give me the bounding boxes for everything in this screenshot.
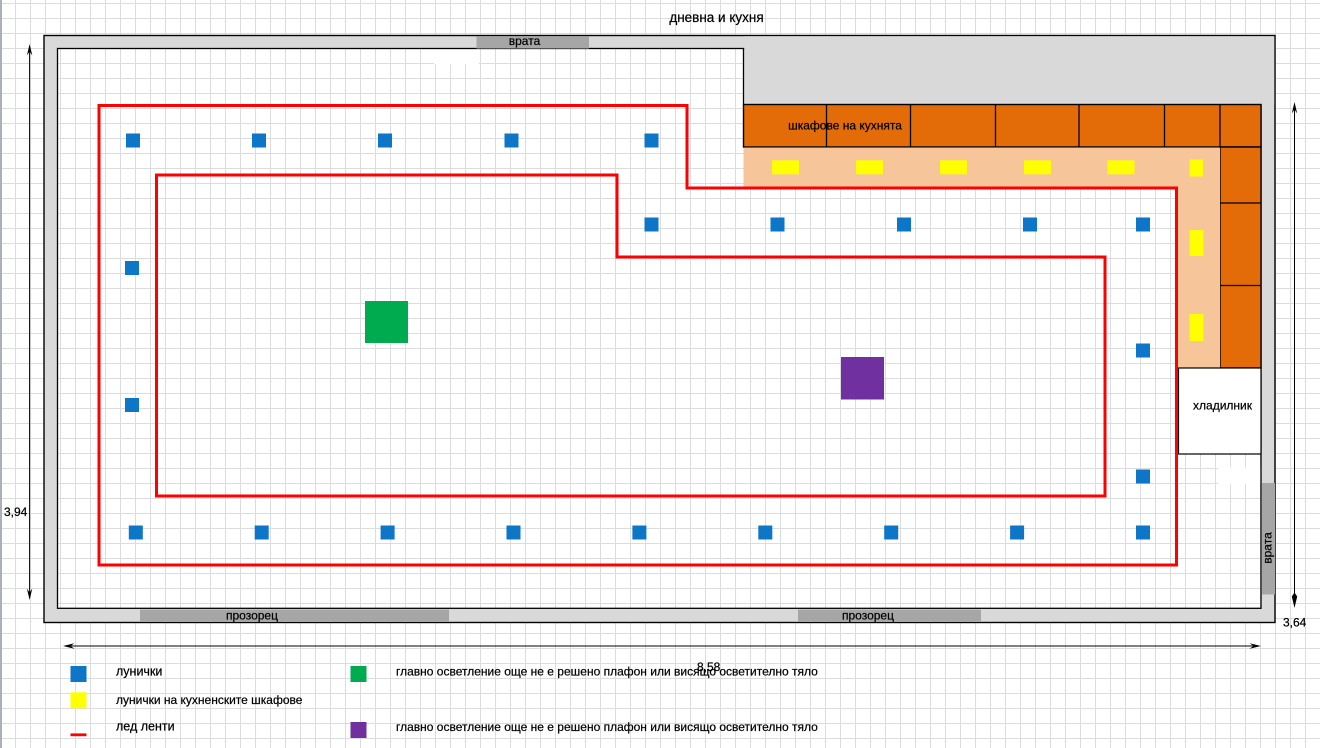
svg-text:3,64: 3,64 <box>1283 616 1307 630</box>
svg-text:лунички на кухненските шкафове: лунички на кухненските шкафове <box>116 693 303 707</box>
svg-text:главно осветление още не е реш: главно осветление още не е решено плафон… <box>396 720 818 734</box>
svg-text:врата: врата <box>509 34 541 48</box>
svg-text:3,94: 3,94 <box>4 505 28 519</box>
svg-text:дневна и кухня: дневна и кухня <box>669 10 763 25</box>
svg-text:лунички: лунички <box>116 665 162 679</box>
svg-text:прозорец: прозорец <box>842 609 894 623</box>
svg-text:врата: врата <box>1261 532 1275 564</box>
svg-text:прозорец: прозорец <box>226 609 278 623</box>
svg-text:лед ленти: лед ленти <box>116 720 175 734</box>
svg-text:шкафове на кухнята: шкафове на кухнята <box>788 119 902 133</box>
svg-text:хладилник: хладилник <box>1193 399 1253 413</box>
svg-text:главно осветление още не е реш: главно осветление още не е решено плафон… <box>396 665 818 679</box>
